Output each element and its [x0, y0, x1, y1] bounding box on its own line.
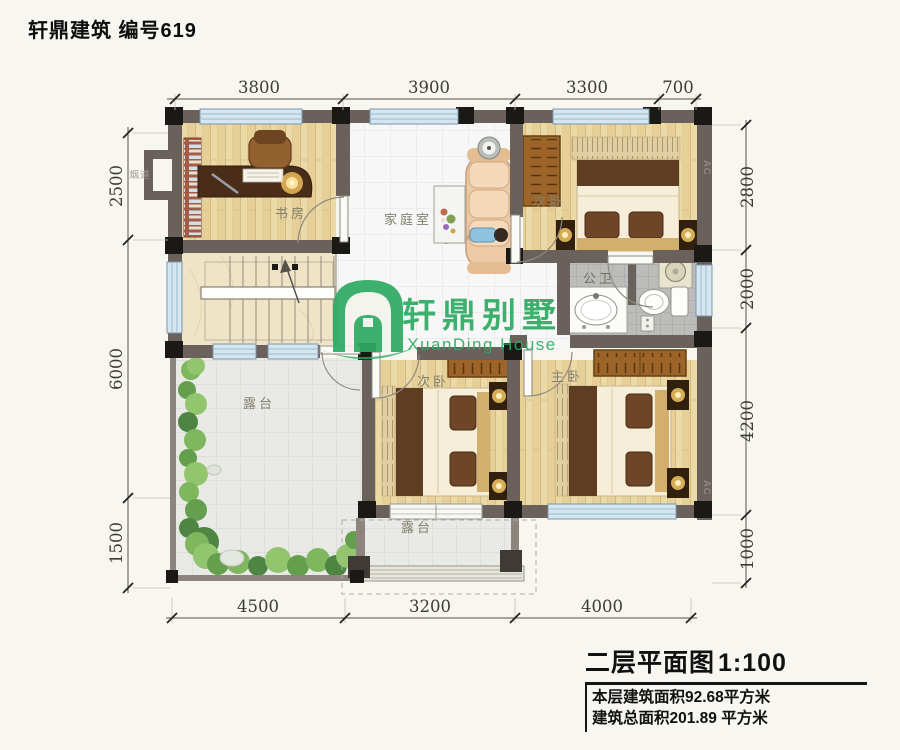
floor-plan-page: 轩鼎建筑 编号619 — [0, 0, 900, 750]
desk-paper — [243, 169, 283, 182]
total-area-line: 建筑总面积201.89 平方米 — [592, 709, 867, 730]
room-label-terrace-small: 露台 — [401, 520, 433, 535]
window — [213, 344, 256, 359]
floor-plan-drawing: 书房 家庭室 次卧 公卫 次卧 主卧 露台 露台 烟道 AC AC 轩鼎别墅 X… — [0, 0, 900, 750]
stair-handrail — [201, 287, 335, 299]
pillow — [626, 452, 652, 486]
area-summary: 本层建筑面积92.68平方米 建筑总面积201.89 平方米 — [585, 685, 867, 732]
room-label-master-bedroom: 主卧 — [551, 369, 583, 384]
dim-bottom-1: 4500 — [237, 597, 279, 616]
dim-top-3: 3300 — [566, 78, 608, 97]
terrace-small-floor — [365, 518, 511, 566]
window — [553, 109, 649, 124]
flue-opening — [153, 159, 172, 191]
pillow — [585, 212, 619, 238]
dim-left-3: 1500 — [107, 522, 126, 564]
dim-top-1: 3800 — [238, 78, 280, 97]
dim-right-2: 2000 — [738, 268, 757, 310]
logo-name: 轩鼎别墅 — [402, 297, 562, 335]
room-label-bedroom-top: 次卧 — [533, 194, 565, 209]
pillow — [629, 212, 663, 238]
room-label-bedroom-mid: 次卧 — [417, 374, 449, 389]
window — [370, 109, 458, 124]
dim-left-1: 2500 — [107, 165, 126, 207]
ac-label-bottom: AC — [701, 480, 712, 495]
room-label-study: 书房 — [275, 206, 307, 221]
window — [268, 344, 318, 359]
pillow — [450, 452, 476, 486]
dim-top-4: 700 — [662, 78, 694, 97]
window — [167, 262, 182, 333]
room-label-family-room: 家庭室 — [384, 212, 432, 227]
window — [548, 504, 676, 519]
person-on-sofa — [470, 228, 496, 242]
dim-right-3: 4200 — [738, 400, 757, 442]
flue-label: 烟道 — [129, 169, 150, 181]
toilet — [671, 287, 688, 316]
dim-bottom-3: 4000 — [581, 597, 623, 616]
window — [200, 109, 302, 124]
room-label-terrace-large: 露台 — [243, 396, 275, 411]
logo-subtitle: XuanDing House — [407, 335, 557, 354]
ac-label-top: AC — [701, 160, 712, 175]
dim-left-2: 6000 — [107, 348, 126, 390]
room-label-bathroom: 公卫 — [583, 271, 615, 286]
dim-top-2: 3900 — [408, 78, 450, 97]
floor-drain — [641, 316, 654, 331]
window — [696, 265, 712, 316]
drawing-scale: 1:100 — [718, 649, 787, 677]
floor-area-line: 本层建筑面积92.68平方米 — [592, 688, 867, 709]
drawing-title: 二层平面图 — [585, 649, 715, 677]
bed-frill — [572, 137, 680, 159]
dim-bottom-2: 3200 — [409, 597, 451, 616]
coffee-table — [434, 186, 465, 243]
dim-right-4: 1000 — [738, 528, 757, 570]
title-block: 二层平面图1:100 本层建筑面积92.68平方米 建筑总面积201.89 平方… — [585, 643, 867, 732]
pillow — [626, 394, 652, 428]
drawing-title-row: 二层平面图1:100 — [585, 643, 867, 685]
terrace-stone — [220, 550, 244, 566]
pillow — [450, 396, 476, 430]
sliding-door — [390, 504, 482, 519]
dim-right-1: 2800 — [738, 166, 757, 208]
